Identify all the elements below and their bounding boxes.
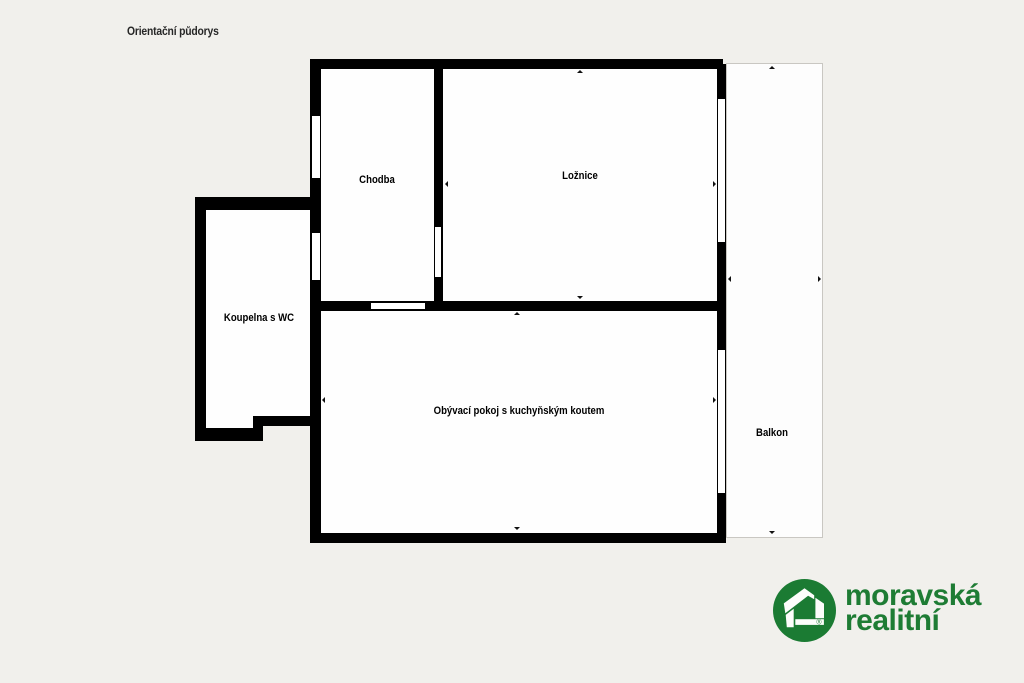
svg-text:®: ® bbox=[816, 618, 822, 626]
